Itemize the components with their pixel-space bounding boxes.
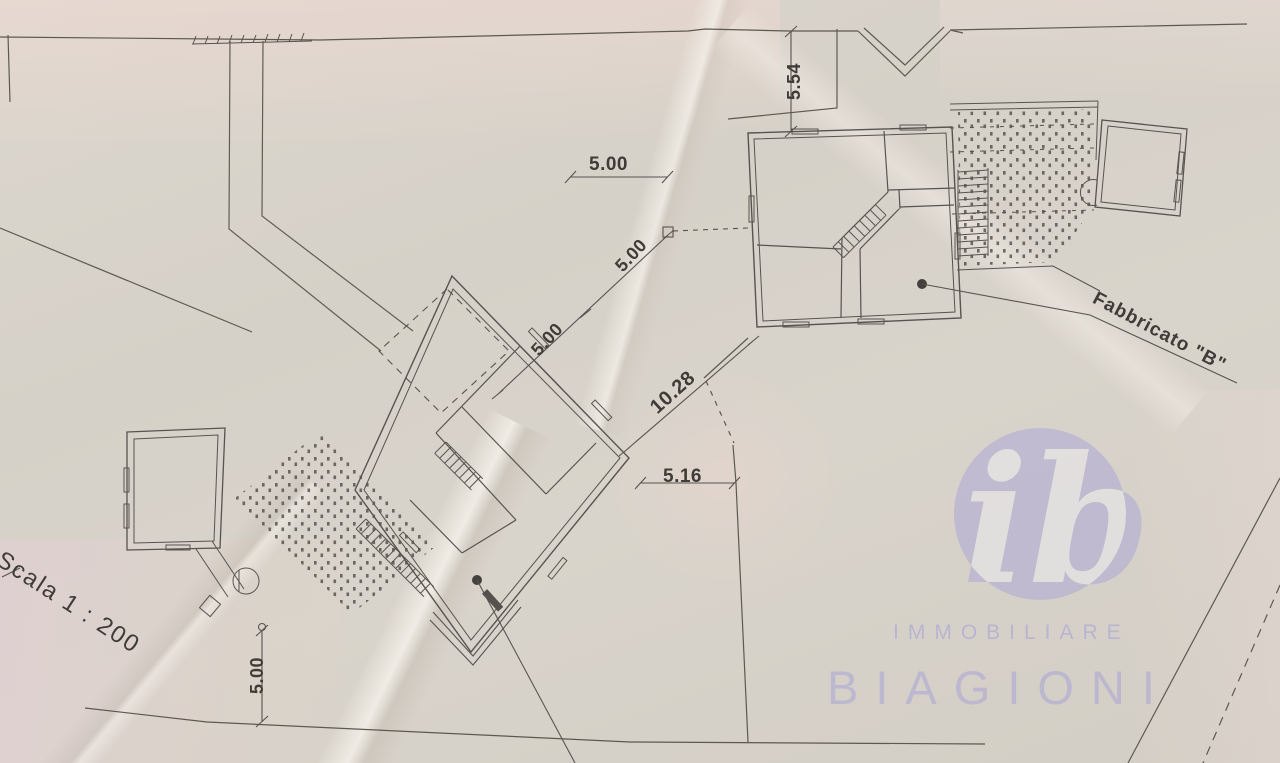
- driveway-path: [229, 41, 413, 351]
- terrace-b: [950, 101, 1100, 291]
- watermark-biagioni: BIAGIONI: [827, 660, 1172, 715]
- dimension-label-fence-height: 5.54: [784, 63, 805, 100]
- dimension-label-top-width: 5.00: [589, 154, 628, 176]
- stairs-building-a: [435, 442, 483, 490]
- dimension-label-bottom-offset: 5.00: [247, 657, 268, 694]
- watermark-immobiliare: IMMOBILIARE: [893, 621, 1130, 645]
- scanned-site-plan: ib ib: [0, 0, 1280, 763]
- dimension-label-east-gap: 5.16: [663, 466, 702, 488]
- terrace-a: [196, 432, 436, 617]
- site-plan-drawing: [0, 0, 1280, 763]
- outbuilding-left: [124, 428, 225, 550]
- leader-line-building-b: [922, 284, 1237, 383]
- building-b: [748, 125, 961, 327]
